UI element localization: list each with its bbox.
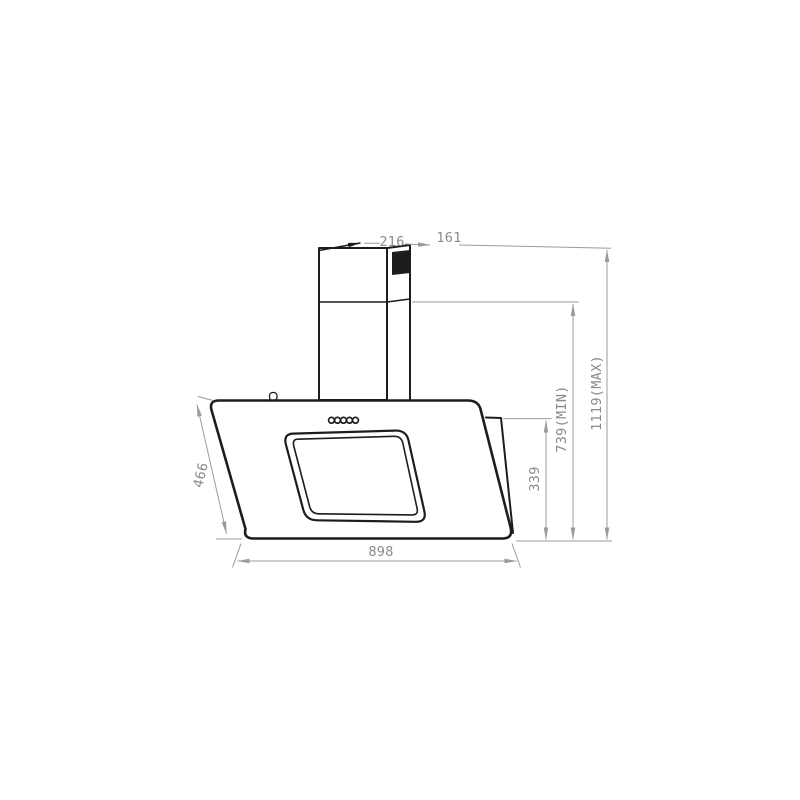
- cooker-hood-technical-drawing: 216 161 466 898 339 739(MIN) 1119(MAX): [0, 0, 800, 800]
- ext-tick-898-left: [233, 544, 242, 568]
- button-dot: [329, 417, 335, 423]
- drawing-svg: 216 161 466 898 339 739(MIN) 1119(MAX): [0, 0, 800, 800]
- chimney-duct: [319, 243, 410, 400]
- chimney-front-face: [319, 248, 387, 400]
- dim-label-216: 216: [379, 234, 404, 250]
- dim-label-466: 466: [190, 461, 211, 489]
- dim-label-161: 161: [436, 230, 461, 246]
- ext-tick-898-right: [512, 544, 521, 568]
- dim-label-339: 339: [527, 466, 543, 491]
- control-buttons: [329, 417, 359, 423]
- ext-line-top-max: [459, 245, 611, 248]
- ext-tick-466-top: [198, 397, 213, 401]
- dim-label-1119max: 1119(MAX): [589, 355, 605, 431]
- button-dot: [353, 417, 359, 423]
- chimney-telescopic-joint-line: [319, 299, 410, 302]
- extension-lines: [198, 243, 612, 567]
- button-dot: [335, 417, 341, 423]
- chimney-top-edge-leader: [319, 243, 360, 251]
- air-outlet: [392, 250, 410, 275]
- dim-label-898: 898: [368, 544, 393, 560]
- button-dot: [347, 417, 353, 423]
- grease-filter-window-inner: [293, 436, 417, 515]
- dimension-labels: 216 161 466 898 339 739(MIN) 1119(MAX): [190, 230, 605, 560]
- dim-label-739min: 739(MIN): [554, 385, 570, 452]
- hood-glass-panel: [211, 401, 511, 539]
- hood-body: [211, 393, 513, 539]
- button-dot: [341, 417, 347, 423]
